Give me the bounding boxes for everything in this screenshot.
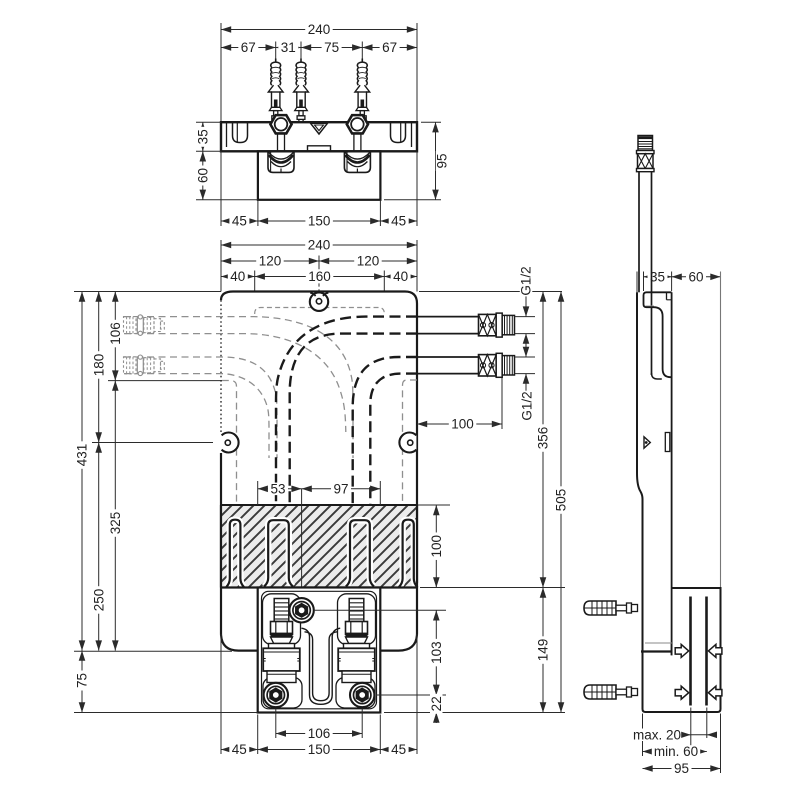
svg-text:45: 45: [232, 742, 247, 757]
svg-text:100: 100: [451, 417, 474, 432]
svg-text:106: 106: [108, 322, 123, 345]
svg-text:180: 180: [91, 354, 106, 377]
svg-text:45: 45: [391, 214, 406, 229]
svg-text:31: 31: [281, 40, 296, 55]
svg-text:67: 67: [382, 40, 397, 55]
svg-text:40: 40: [393, 269, 408, 284]
svg-text:160: 160: [308, 269, 331, 284]
svg-text:60: 60: [196, 168, 211, 183]
svg-text:97: 97: [333, 482, 348, 497]
svg-text:35: 35: [196, 129, 211, 144]
svg-text:505: 505: [554, 489, 569, 512]
svg-text:95: 95: [674, 761, 689, 776]
svg-text:120: 120: [259, 254, 282, 269]
svg-text:53: 53: [270, 482, 285, 497]
svg-text:431: 431: [75, 444, 90, 467]
svg-text:106: 106: [308, 726, 331, 741]
svg-text:min. 60: min. 60: [654, 744, 698, 759]
svg-text:325: 325: [108, 512, 123, 535]
svg-text:max. 20: max. 20: [633, 728, 681, 743]
svg-text:45: 45: [232, 214, 247, 229]
svg-text:120: 120: [357, 254, 380, 269]
svg-text:45: 45: [391, 742, 406, 757]
svg-text:150: 150: [308, 214, 331, 229]
svg-text:149: 149: [536, 639, 551, 662]
svg-text:75: 75: [324, 40, 339, 55]
svg-text:240: 240: [308, 238, 331, 253]
svg-text:250: 250: [91, 589, 106, 612]
svg-text:103: 103: [429, 641, 444, 664]
svg-text:G1/2: G1/2: [519, 266, 534, 295]
svg-text:95: 95: [435, 153, 450, 168]
svg-text:100: 100: [429, 535, 444, 558]
svg-text:60: 60: [688, 270, 703, 285]
svg-text:75: 75: [75, 673, 90, 688]
svg-text:356: 356: [536, 427, 551, 450]
svg-text:150: 150: [308, 742, 331, 757]
svg-text:G1/2: G1/2: [520, 391, 535, 420]
svg-text:67: 67: [241, 40, 256, 55]
svg-text:22: 22: [429, 696, 444, 711]
svg-text:240: 240: [308, 22, 331, 37]
svg-text:40: 40: [230, 269, 245, 284]
